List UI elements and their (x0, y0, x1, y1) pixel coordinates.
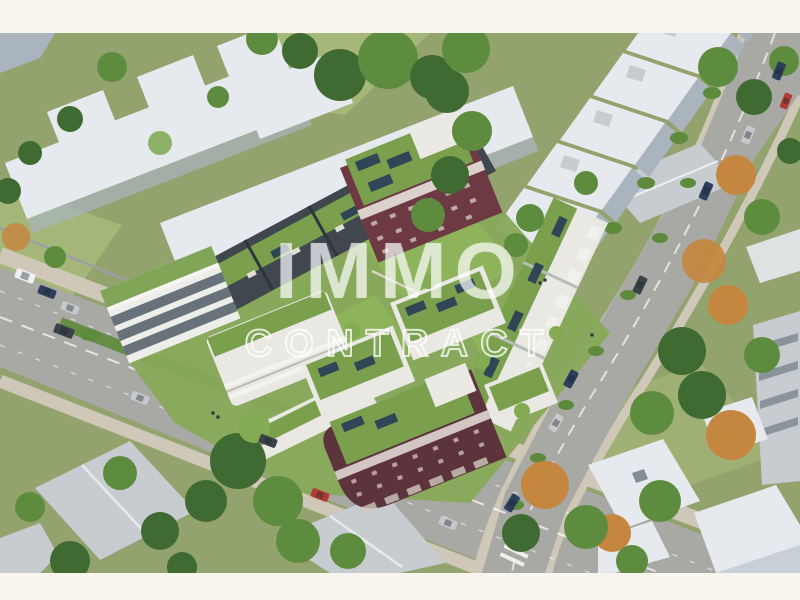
bottom-border (0, 573, 800, 600)
top-border (0, 0, 800, 33)
aerial-rendering: IMMO CONTRACT (0, 33, 800, 573)
rendering-frame: IMMO CONTRACT (0, 0, 800, 600)
